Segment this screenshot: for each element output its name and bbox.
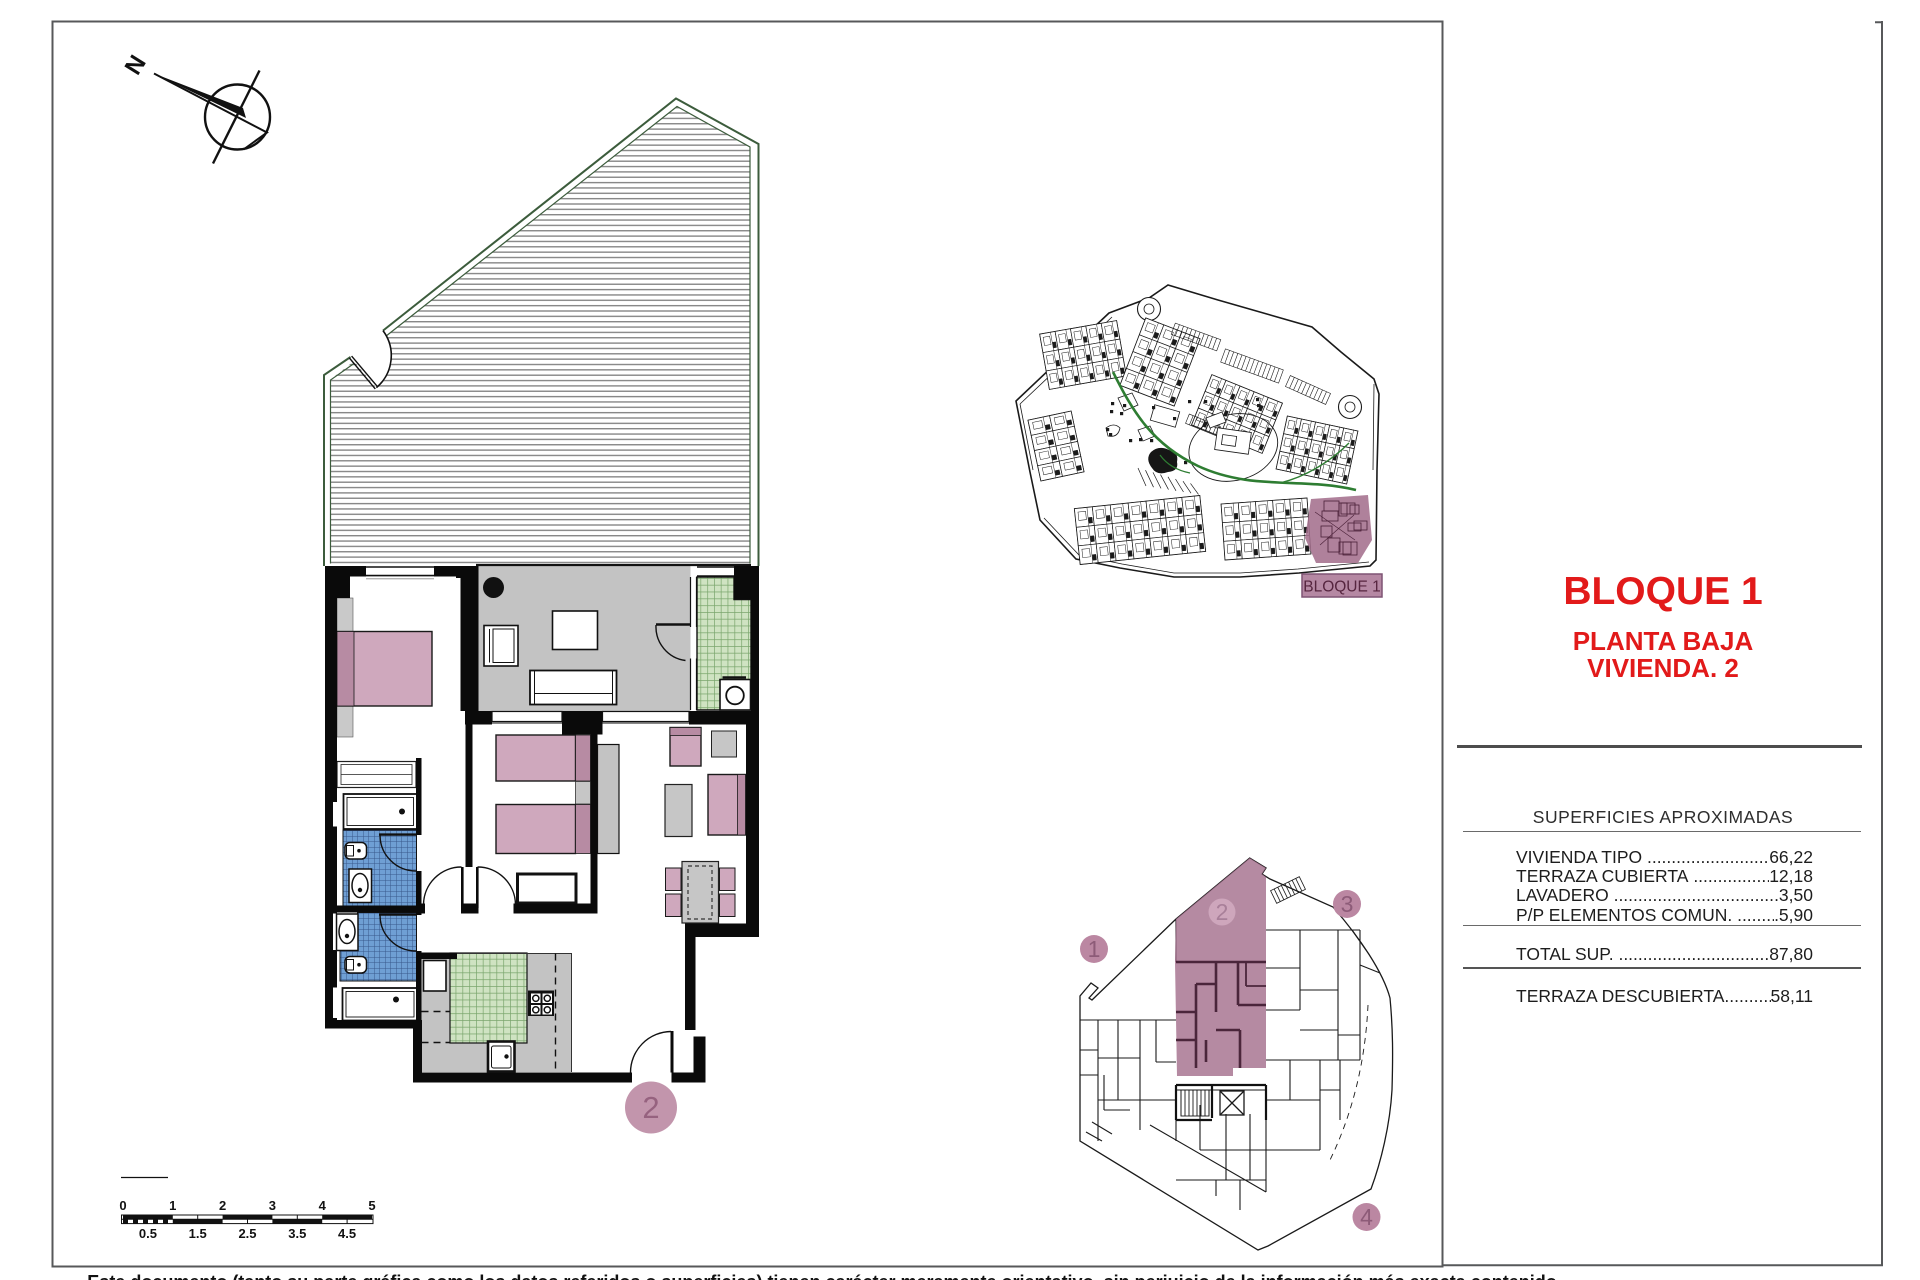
svg-text:5: 5 xyxy=(368,1198,375,1213)
svg-text:0.5: 0.5 xyxy=(139,1226,157,1241)
svg-text:3: 3 xyxy=(269,1198,276,1213)
svg-text:1: 1 xyxy=(1088,936,1101,962)
svg-text:BLOQUE 1: BLOQUE 1 xyxy=(1303,579,1381,596)
svg-text:4.5: 4.5 xyxy=(338,1226,356,1241)
svg-text:4: 4 xyxy=(319,1198,327,1213)
svg-text:4: 4 xyxy=(1360,1204,1373,1230)
svg-text:1: 1 xyxy=(169,1198,176,1213)
svg-text:3.5: 3.5 xyxy=(288,1226,306,1241)
svg-text:2: 2 xyxy=(642,1090,659,1125)
svg-text:2: 2 xyxy=(219,1198,226,1213)
svg-text:2: 2 xyxy=(1216,899,1229,925)
svg-text:3: 3 xyxy=(1341,891,1354,917)
svg-text:0: 0 xyxy=(119,1198,126,1213)
svg-text:N: N xyxy=(120,51,152,80)
svg-text:2.5: 2.5 xyxy=(238,1226,256,1241)
svg-text:1.5: 1.5 xyxy=(189,1226,207,1241)
